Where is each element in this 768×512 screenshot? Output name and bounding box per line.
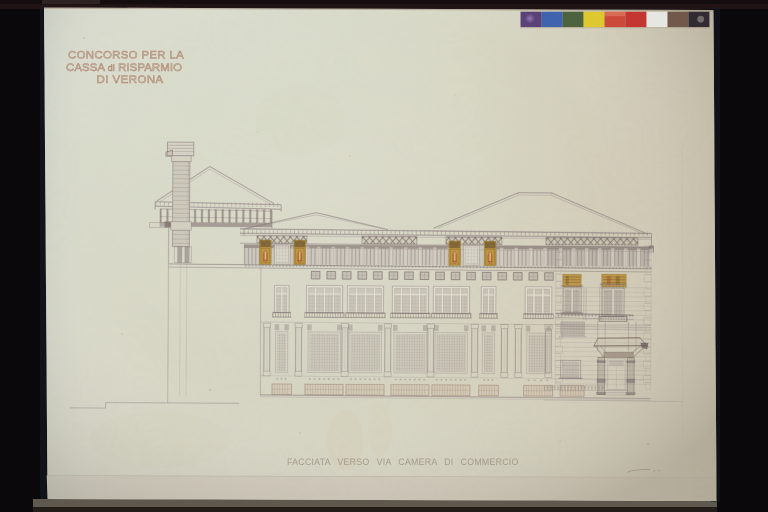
svg-text:CASSA di RISPARMIO: CASSA di RISPARMIO [66, 62, 182, 74]
svg-text:DI VERONA: DI VERONA [97, 74, 164, 86]
svg-text:FACCIATA VERSO VIA CAMERA DI C: FACCIATA VERSO VIA CAMERA DI COMMERCIO [287, 457, 519, 467]
svg-text:CONCORSO PER LA: CONCORSO PER LA [68, 50, 184, 62]
